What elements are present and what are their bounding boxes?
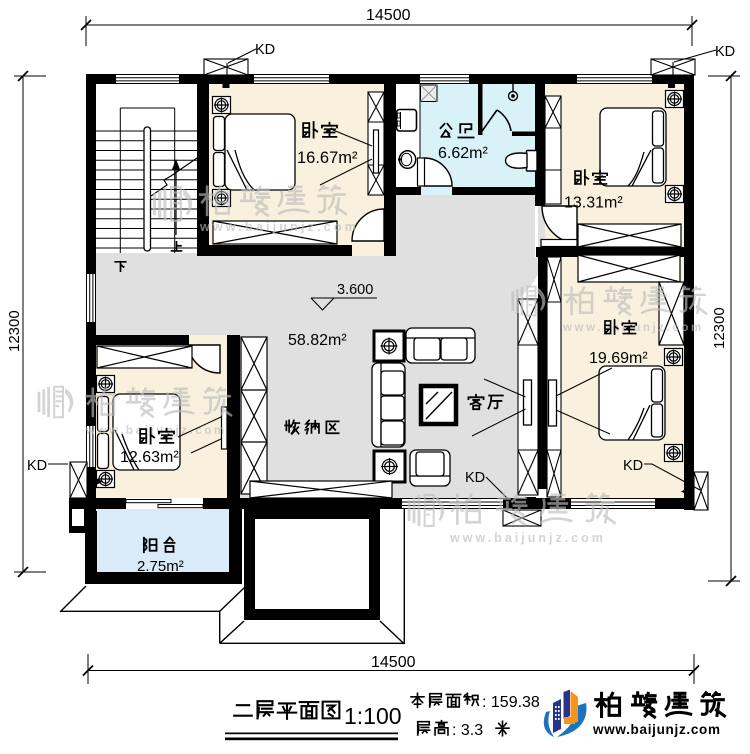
svg-text:58.82m²: 58.82m²: [288, 332, 347, 349]
svg-text:2.75m²: 2.75m²: [137, 558, 184, 575]
svg-text:: 3.3: : 3.3: [452, 722, 483, 739]
svg-text:www.baijunjz.com: www.baijunjz.com: [449, 531, 606, 545]
svg-text:16.67m²: 16.67m²: [297, 149, 358, 167]
svg-text:KD: KD: [623, 458, 643, 474]
svg-text:KD: KD: [27, 458, 47, 474]
svg-text:KD: KD: [465, 470, 485, 486]
svg-text:KD: KD: [255, 42, 275, 58]
svg-text:6.62m²: 6.62m²: [438, 145, 488, 162]
svg-text:19.69m²: 19.69m²: [589, 350, 648, 367]
svg-text:14500: 14500: [371, 654, 416, 671]
svg-text:www.baijunjz.com: www.baijunjz.com: [85, 425, 227, 437]
svg-text:www.baijunjz.com: www.baijunjz.com: [199, 220, 359, 234]
svg-text:12300: 12300: [711, 307, 728, 349]
svg-text:KD: KD: [715, 44, 735, 60]
svg-text:: 159.38: : 159.38: [482, 694, 540, 711]
svg-text:13.31m²: 13.31m²: [564, 195, 623, 212]
svg-text:12300: 12300: [6, 310, 23, 352]
svg-text:1:100: 1:100: [344, 703, 402, 729]
svg-text:www.baijunjz.com: www.baijunjz.com: [592, 722, 721, 737]
svg-text:3.600: 3.600: [337, 282, 373, 298]
svg-text:12.63m²: 12.63m²: [120, 449, 179, 466]
svg-text:14500: 14500: [366, 7, 411, 24]
